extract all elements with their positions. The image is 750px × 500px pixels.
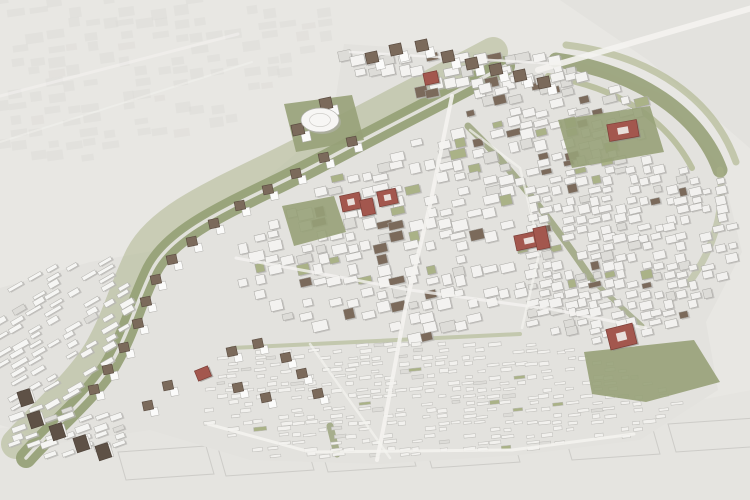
masterplan-rendering — [0, 0, 750, 500]
masterplan-svg — [0, 0, 750, 500]
